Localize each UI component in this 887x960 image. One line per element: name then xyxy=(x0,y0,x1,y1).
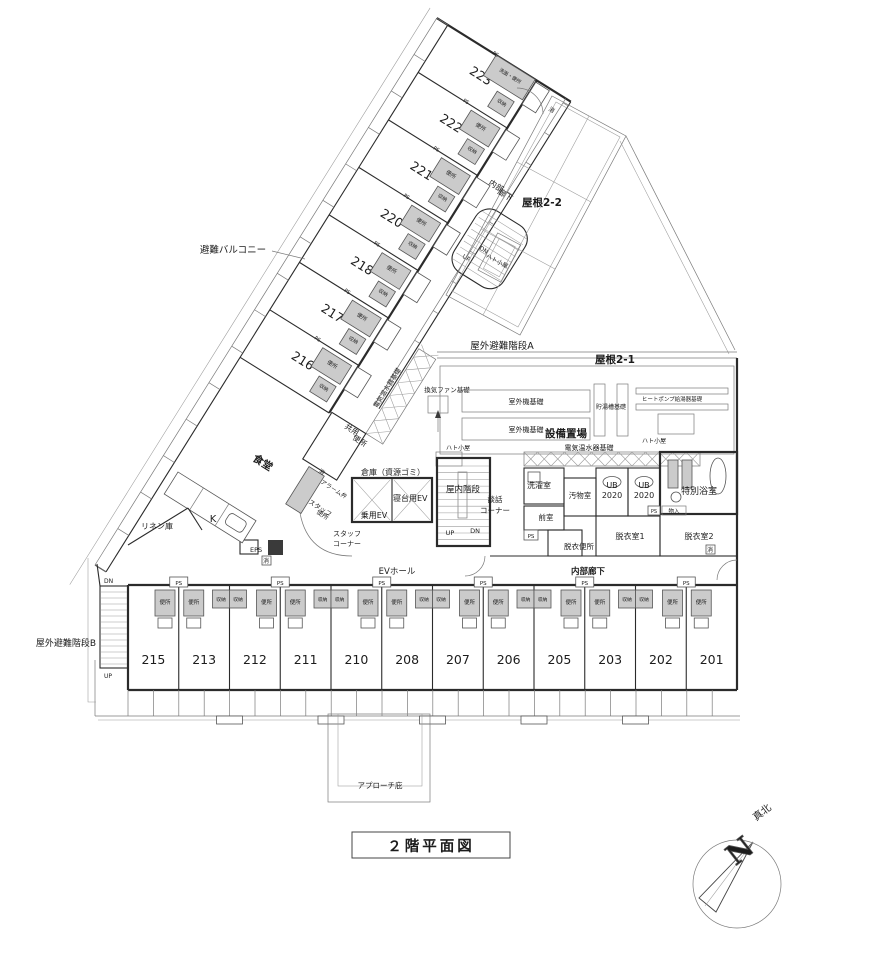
south-closet-label: 収納 xyxy=(335,596,345,603)
ub2-l2: 2020 xyxy=(634,491,654,500)
shared-toilet-l2: 便所 xyxy=(351,432,369,449)
south-toilet-label: 便所 xyxy=(667,598,679,606)
staff-corner-l1: スタッフ xyxy=(333,529,361,538)
south-toilet-label: 便所 xyxy=(391,598,403,606)
south-toilet-label: 便所 xyxy=(696,598,708,606)
linen-label: リネン庫 xyxy=(141,521,173,531)
south-fixture xyxy=(390,618,404,628)
equipment-yard-label: 設備置場 xyxy=(545,427,587,440)
wing-room-number-222: 222 xyxy=(437,110,465,135)
balcony-tick xyxy=(255,310,266,317)
wing-room-number-216: 216 xyxy=(289,348,317,373)
soiled-room-label: 汚物室 xyxy=(569,490,592,500)
south-room-number-205: 205 xyxy=(547,652,571,667)
talk-corner-l2: コーナー xyxy=(480,506,510,515)
compass-n: N xyxy=(720,830,760,872)
balcony-tick xyxy=(346,164,357,171)
balcony-tick xyxy=(391,91,402,98)
balcony-tick xyxy=(323,200,334,207)
south-closet-label: 収納 xyxy=(216,596,226,603)
kitchen-fixtures xyxy=(128,467,324,545)
approach-canopy: アプローチ庇 xyxy=(328,714,430,802)
balcony-tick xyxy=(141,492,152,499)
south-closet-label: 収納 xyxy=(233,596,243,603)
ext-mark-2: 消 xyxy=(707,546,713,554)
south-ps-label: PS xyxy=(683,581,690,587)
electric-heater-base-label-wing: 電気温水器基礎 xyxy=(371,366,403,410)
stair-b-dn: DN xyxy=(104,578,113,585)
balcony-tick xyxy=(163,456,174,463)
ext-mark-3: 消 xyxy=(547,105,556,115)
alarm-l2: アラーム弁 xyxy=(319,478,349,501)
balcony-tick xyxy=(300,237,311,244)
south-fixture xyxy=(361,618,375,628)
laundry-label: 洗濯室 xyxy=(527,480,551,490)
balcony-tick xyxy=(232,346,243,353)
balcony-tick xyxy=(186,419,197,426)
south-room-number-210: 210 xyxy=(344,652,368,667)
floor-plan-page: 電気温水器基礎 216便所収納PS217便所収納PS218便所収納PS220便所… xyxy=(0,0,887,955)
south-closet-label: 収納 xyxy=(436,596,446,603)
outdoor-unit-label-1: 室外機基礎 xyxy=(509,397,544,406)
south-ps-label: PS xyxy=(581,581,588,587)
corridor-tick xyxy=(433,311,438,314)
south-fixture xyxy=(491,618,505,628)
balcony-divider xyxy=(623,716,649,724)
south-room-number-201: 201 xyxy=(700,652,724,667)
true-north-label: 真北 xyxy=(750,801,774,824)
stair-b-label: 屋外避難階段B xyxy=(36,637,96,649)
south-toilet-label: 便所 xyxy=(188,598,200,606)
outdoor-unit-label-2: 室外機基礎 xyxy=(509,425,544,434)
south-room-number-208: 208 xyxy=(395,652,419,667)
undressing-toilet-label: 脱衣便所 xyxy=(564,541,594,551)
dining-label: 食堂 xyxy=(250,451,276,474)
corridor-tick xyxy=(415,340,420,343)
evac-balcony-label: 避難バルコニー xyxy=(200,244,266,256)
floor-plan-canvas: 電気温水器基礎 216便所収納PS217便所収納PS218便所収納PS220便所… xyxy=(0,0,887,955)
stair-a-label: 屋外避難階段A xyxy=(470,340,534,352)
indoor-stair-label: 屋内階段 xyxy=(446,484,481,495)
indoor-stair-up: UP xyxy=(446,529,455,537)
south-toilet-label: 便所 xyxy=(362,598,374,606)
talk-corner-l1: 談話 xyxy=(488,494,503,504)
south-fixture xyxy=(463,618,477,628)
ps-label-a: PS xyxy=(528,534,535,540)
electric-heater-base-label-h: 電気温水器基礎 xyxy=(565,443,614,452)
south-room-number-207: 207 xyxy=(446,652,470,667)
south-fixture xyxy=(260,618,274,628)
balcony-tick xyxy=(414,54,425,61)
bed-ev-label: 寝台用EV xyxy=(393,493,428,503)
ps-label-b: PS xyxy=(651,509,657,515)
inner-corridor-wing-l2: 廊下 xyxy=(496,186,515,203)
south-toilet-label: 便所 xyxy=(594,598,606,606)
south-fixture xyxy=(694,618,708,628)
south-closet-label: 収納 xyxy=(419,596,429,603)
corridor-tick xyxy=(545,132,550,135)
south-room-number-203: 203 xyxy=(598,652,622,667)
staff-corner-l2: コーナー xyxy=(333,540,361,548)
labels-layer: 避難バルコニー 屋根2-2 屋根2-1 屋外避難階段A 屋外避難階段B 設備置場… xyxy=(36,105,717,649)
eps-label: EPS xyxy=(250,546,262,554)
ub1-l1: UB xyxy=(606,481,617,490)
passenger-ev-label: 乗用EV xyxy=(361,510,388,520)
pigeon-hut-label-1: ハト小屋 xyxy=(485,252,510,270)
south-fixture xyxy=(593,618,607,628)
wing-room-number-220: 220 xyxy=(378,205,406,230)
south-room-number-206: 206 xyxy=(497,652,521,667)
approach-canopy-label: アプローチ庇 xyxy=(358,780,403,790)
south-room-number-202: 202 xyxy=(649,652,673,667)
stair-b-up: UP xyxy=(104,673,112,680)
south-fixture xyxy=(564,618,578,628)
south-closet-label: 収納 xyxy=(622,596,632,603)
hatch xyxy=(374,408,399,431)
undressing1-label: 脱衣室1 xyxy=(615,531,644,541)
south-room-number-211: 211 xyxy=(294,652,318,667)
wing-room-number-218: 218 xyxy=(348,253,376,278)
anteroom-label: 前室 xyxy=(539,512,554,522)
south-fixture xyxy=(158,618,172,628)
south-room-number-215: 215 xyxy=(141,652,165,667)
south-toilet-label: 便所 xyxy=(159,598,171,606)
ev-hall-label: EVホール xyxy=(379,567,416,577)
balcony-divider xyxy=(420,716,446,724)
ub1-l2: 2020 xyxy=(602,491,622,500)
compass: N 真北 xyxy=(693,801,781,928)
title-block: ２階平面図 xyxy=(352,832,510,858)
south-toilet-label: 便所 xyxy=(261,598,273,606)
outdoor-stair-b: DN UP xyxy=(100,578,128,680)
storage-in-label: 物入 xyxy=(668,507,680,515)
pigeon-hut-label-2: ハト小屋 xyxy=(642,437,666,445)
south-fixture xyxy=(187,618,201,628)
bath-service-rooms xyxy=(524,452,737,580)
wing-room-number-217: 217 xyxy=(318,300,346,325)
warehouse-label: 倉庫（資源ゴミ） xyxy=(361,467,425,477)
south-toilet-label: 便所 xyxy=(290,598,302,606)
inner-corridor-south-label: 内部廊下 xyxy=(571,566,606,577)
special-bath-label: 特別浴室 xyxy=(681,485,717,497)
balcony-tick xyxy=(118,529,129,536)
south-ps-label: PS xyxy=(378,581,385,587)
balcony-tick xyxy=(95,565,106,572)
south-room-number-212: 212 xyxy=(243,652,267,667)
south-room-number-213: 213 xyxy=(192,652,216,667)
south-closet-label: 収納 xyxy=(538,596,548,603)
ub2-l1: UB xyxy=(638,481,649,490)
undressing2-label: 脱衣室2 xyxy=(684,531,713,541)
balcony-divider xyxy=(318,716,344,724)
wing-room-number-221: 221 xyxy=(408,158,436,183)
tank-base-label: 貯湯槽基礎 xyxy=(596,403,626,411)
balcony-divider xyxy=(217,716,243,724)
roof-2-2-label: 屋根2-2 xyxy=(522,196,562,209)
south-closet-label: 収納 xyxy=(318,596,328,603)
indoor-stair-dn: DN xyxy=(470,527,480,535)
corridor-tick xyxy=(526,162,531,165)
balcony-tick xyxy=(368,127,379,134)
vent-fan-base-label: 換気ファン基礎 xyxy=(424,385,470,394)
ext-mark-1: 消 xyxy=(263,557,269,565)
balcony-tick xyxy=(277,273,288,280)
pigeon-hut-label-3: ハト小屋 xyxy=(446,444,470,452)
balcony-tick xyxy=(209,383,220,390)
south-ps-label: PS xyxy=(175,581,182,587)
south-closet-label: 収納 xyxy=(521,596,531,603)
south-toilet-label: 便所 xyxy=(565,598,577,606)
south-ps-label: PS xyxy=(480,581,487,587)
balcony-tick xyxy=(437,18,448,25)
drawing-title: ２階平面図 xyxy=(387,837,475,855)
south-fixture xyxy=(288,618,302,628)
south-toilet-label: 便所 xyxy=(493,598,505,606)
heat-pump-base-label: ヒートポンプ給湯器基礎 xyxy=(642,395,703,403)
kitchen-label: K xyxy=(210,514,217,525)
south-ps-label: PS xyxy=(277,581,284,587)
stair-tread xyxy=(471,229,515,257)
hatch xyxy=(366,421,391,444)
south-toilet-label: 便所 xyxy=(464,598,476,606)
south-rooms: 215便所213便所PS212便所収納収納211便所PS210便所収納収納208… xyxy=(128,577,724,724)
south-closet-label: 収納 xyxy=(639,596,649,603)
roof-2-1-label: 屋根2-1 xyxy=(595,353,635,366)
south-fixture xyxy=(666,618,680,628)
balcony-divider xyxy=(521,716,547,724)
